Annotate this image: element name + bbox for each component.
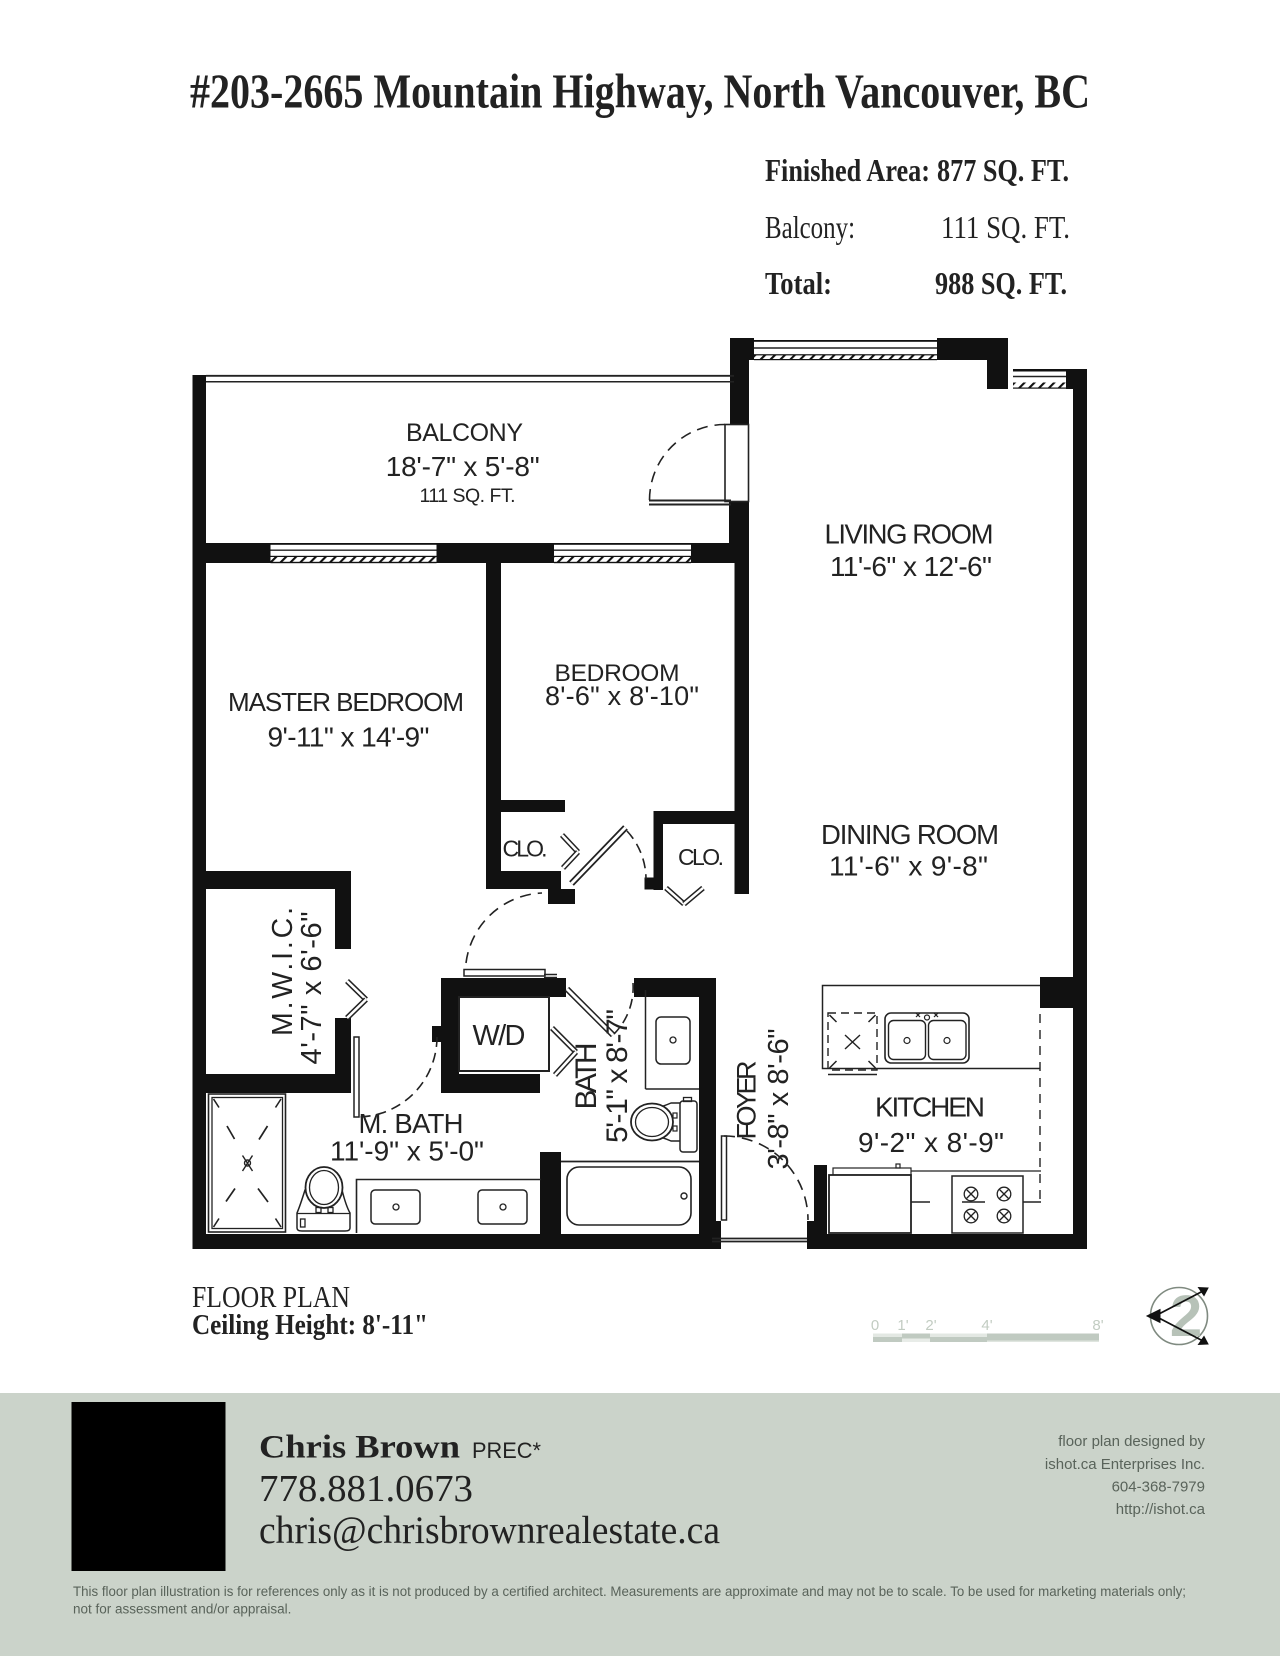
- svg-text:CLO.: CLO.: [678, 844, 724, 870]
- svg-text:988 SQ. FT.: 988 SQ. FT.: [935, 265, 1067, 301]
- svg-text:604-368-7979: 604-368-7979: [1112, 1479, 1205, 1496]
- svg-text:FOYER: FOYER: [732, 1061, 762, 1140]
- svg-text:0: 0: [871, 1317, 879, 1334]
- svg-text:ishot.ca Enterprises Inc.: ishot.ca Enterprises Inc.: [1045, 1456, 1205, 1473]
- svg-text:8'-6" x 8'-10": 8'-6" x 8'-10": [545, 681, 699, 711]
- svg-text:778.881.0673: 778.881.0673: [259, 1468, 473, 1510]
- svg-text:Balcony:: Balcony:: [765, 209, 855, 245]
- svg-text:KITCHEN: KITCHEN: [875, 1092, 985, 1123]
- svg-text:8': 8': [1092, 1317, 1103, 1334]
- svg-text:111 SQ. FT.: 111 SQ. FT.: [420, 485, 516, 507]
- svg-text:9'-2" x 8'-9": 9'-2" x 8'-9": [858, 1127, 1004, 1158]
- svg-text:FLOOR PLAN: FLOOR PLAN: [192, 1279, 350, 1314]
- svg-text:Chris Brown: Chris Brown: [259, 1430, 460, 1466]
- svg-text:4': 4': [981, 1317, 992, 1334]
- svg-text:#203-2665 Mountain Highway, No: #203-2665 Mountain Highway, North Vancou…: [190, 64, 1090, 119]
- svg-text:http://ishot.ca: http://ishot.ca: [1116, 1501, 1206, 1518]
- svg-text:chris@chrisbrownrealestate.ca: chris@chrisbrownrealestate.ca: [259, 1509, 720, 1552]
- svg-text:W/D: W/D: [473, 1020, 526, 1052]
- svg-text:M. BATH: M. BATH: [359, 1108, 464, 1139]
- svg-text:not for assessment and/or appr: not for assessment and/or appraisal.: [73, 1602, 291, 1617]
- svg-text:2': 2': [925, 1317, 936, 1334]
- svg-text:floor plan designed by: floor plan designed by: [1058, 1433, 1205, 1450]
- svg-text:Ceiling Height: 8'-11": Ceiling Height: 8'-11": [192, 1310, 428, 1341]
- svg-text:3'-8" x 8'-6": 3'-8" x 8'-6": [763, 1029, 795, 1170]
- svg-text:BATH: BATH: [570, 1043, 603, 1110]
- svg-text:MASTER BEDROOM: MASTER BEDROOM: [228, 687, 464, 717]
- svg-text:Finished Area:: Finished Area:: [765, 152, 930, 188]
- svg-text:11'-6" x 9'-8": 11'-6" x 9'-8": [829, 851, 988, 882]
- svg-text:M.W.I.C.: M.W.I.C.: [267, 907, 299, 1036]
- svg-text:111 SQ. FT.: 111 SQ. FT.: [941, 209, 1070, 245]
- svg-text:DINING ROOM: DINING ROOM: [821, 819, 999, 850]
- svg-text:PREC*: PREC*: [472, 1438, 541, 1463]
- svg-text:Total:: Total:: [765, 265, 832, 301]
- svg-text:4'-7" x 6'-6": 4'-7" x 6'-6": [296, 912, 328, 1065]
- svg-text:9'-11" x 14'-9": 9'-11" x 14'-9": [268, 722, 430, 753]
- svg-text:CLO.: CLO.: [503, 836, 548, 862]
- svg-text:18'-7" x 5'-8": 18'-7" x 5'-8": [386, 451, 540, 482]
- svg-text:11'-6" x 12'-6": 11'-6" x 12'-6": [830, 551, 992, 582]
- svg-text:BALCONY: BALCONY: [406, 419, 523, 447]
- svg-text:1': 1': [897, 1317, 908, 1334]
- svg-text:11'-9" x 5'-0": 11'-9" x 5'-0": [330, 1136, 484, 1167]
- svg-text:877 SQ. FT.: 877 SQ. FT.: [937, 152, 1069, 188]
- svg-text:This floor plan illustration i: This floor plan illustration is for refe…: [73, 1584, 1186, 1599]
- svg-text:LIVING ROOM: LIVING ROOM: [825, 519, 994, 550]
- svg-text:5'-1" x 8'-7": 5'-1" x 8'-7": [601, 1009, 634, 1143]
